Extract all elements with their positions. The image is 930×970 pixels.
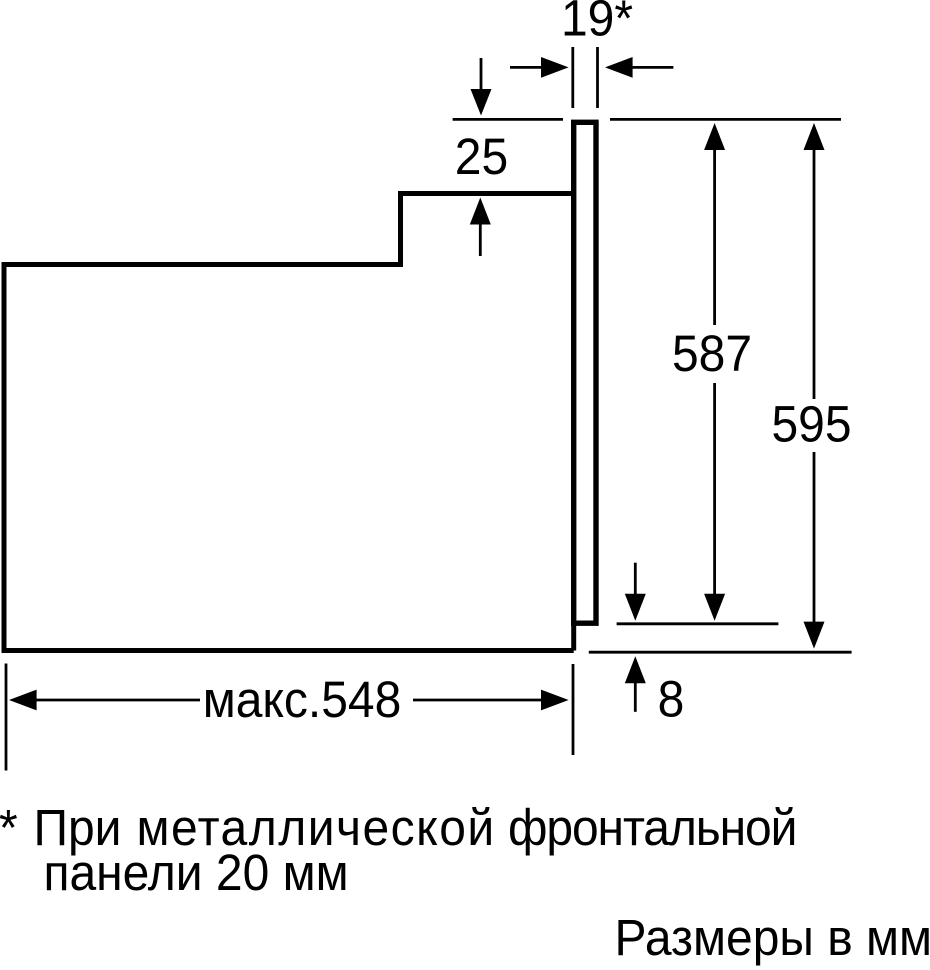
svg-text:Размеры в мм: Размеры в мм (614, 909, 930, 967)
svg-text:8: 8 (658, 670, 685, 728)
svg-text:19*: 19* (561, 0, 633, 47)
svg-text:*: * (0, 799, 18, 857)
svg-text:панели 20 мм: панели 20 мм (44, 844, 349, 902)
svg-text:фронтальной: фронтальной (508, 799, 796, 857)
svg-text:587: 587 (672, 325, 752, 383)
svg-text:25: 25 (455, 128, 508, 186)
svg-text:макс.548: макс.548 (203, 671, 402, 729)
svg-text:595: 595 (771, 395, 851, 453)
